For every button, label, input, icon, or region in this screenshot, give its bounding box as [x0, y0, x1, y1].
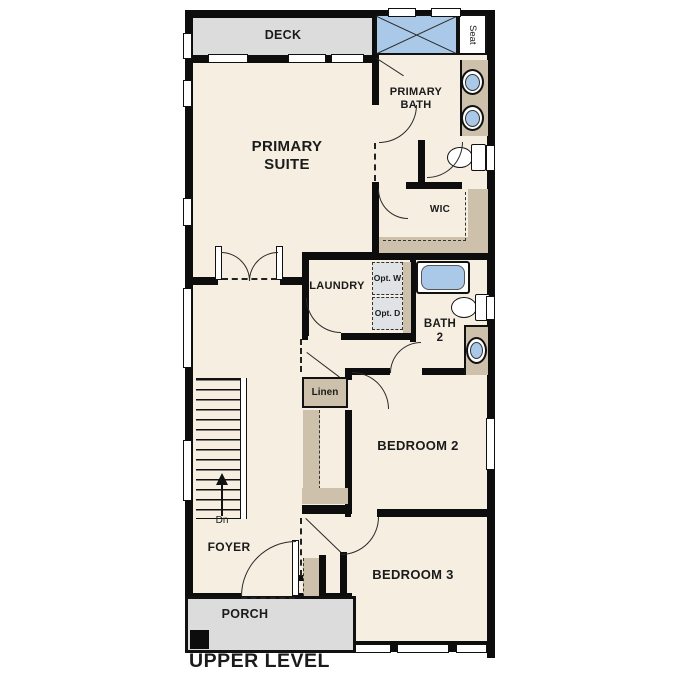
opt-dryer-box: Opt. D [372, 297, 403, 330]
laundry-cabinet-strip [403, 262, 411, 333]
window [331, 54, 364, 63]
room-label-primary-suite: PRIMARY SUITE [245, 138, 329, 175]
window [183, 440, 192, 501]
sink-basin-icon [465, 74, 480, 91]
room-label-bedroom2: BEDROOM 2 [356, 438, 480, 454]
linen-label: Linen [312, 387, 339, 398]
toilet-icon [451, 297, 477, 318]
window [431, 8, 461, 17]
stair-rail [240, 378, 247, 519]
wall-closet-bottom [302, 505, 352, 514]
floor-plan-page: Seat Opt. W Opt. D Linen [0, 0, 687, 687]
room-label-foyer: FOYER [199, 540, 259, 555]
stair-arrow-line [221, 484, 223, 516]
wall-right [487, 10, 495, 658]
bathtub-basin-icon [421, 265, 465, 290]
opt-washer-box: Opt. W [372, 262, 403, 295]
wall-hall-top-a [302, 333, 308, 340]
vestibule-opening [300, 518, 302, 576]
porch-threshold-dash [241, 597, 295, 599]
toilet-tank-icon [471, 144, 486, 171]
sink-basin-icon [465, 110, 480, 127]
wall-hall-top-b [341, 333, 416, 340]
window [388, 8, 416, 17]
sink-basin-icon [470, 342, 483, 359]
window [288, 54, 326, 63]
room-label-laundry: LAUNDRY [304, 280, 370, 293]
window [183, 33, 192, 59]
porch-post [190, 630, 209, 649]
linen-closet: Linen [302, 377, 348, 408]
wall-mid-divider [302, 252, 495, 260]
wall-bed2-bed3-b [377, 509, 495, 517]
window [183, 198, 192, 226]
room-label-bedroom3: BEDROOM 3 [351, 567, 475, 583]
room-label-deck: DECK [233, 28, 333, 43]
closet-shelf [302, 488, 348, 504]
hall-opening [300, 339, 302, 372]
room-label-primary-bath: PRIMARY BATH [383, 86, 449, 113]
window [486, 145, 495, 171]
stairs-dn-label: Dn [209, 515, 235, 526]
room-label-porch: PORCH [212, 607, 278, 622]
closet-strip [303, 410, 320, 489]
porch-floor [185, 596, 356, 653]
room-label-bath2: BATH 2 [421, 317, 459, 345]
window [208, 54, 248, 63]
shower-seat: Seat [458, 14, 487, 55]
window [183, 80, 192, 107]
wall-bath-wic [406, 182, 462, 189]
page-title: UPPER LEVEL [189, 650, 409, 673]
window [486, 296, 495, 320]
suite-door-threshold [222, 278, 277, 280]
wall-laundry-left [302, 252, 309, 336]
stair-arrow-head-icon [216, 473, 228, 485]
bath-wall-opening [374, 143, 376, 181]
room-label-wic: WIC [418, 204, 462, 216]
opt-washer-label: Opt. W [374, 273, 401, 284]
window [456, 644, 487, 653]
shower [375, 14, 458, 55]
wall-toilet-nook [418, 140, 425, 189]
window [183, 288, 192, 368]
seat-label: Seat [467, 25, 478, 45]
window [486, 418, 495, 470]
opt-dryer-label: Opt. D [375, 308, 401, 319]
